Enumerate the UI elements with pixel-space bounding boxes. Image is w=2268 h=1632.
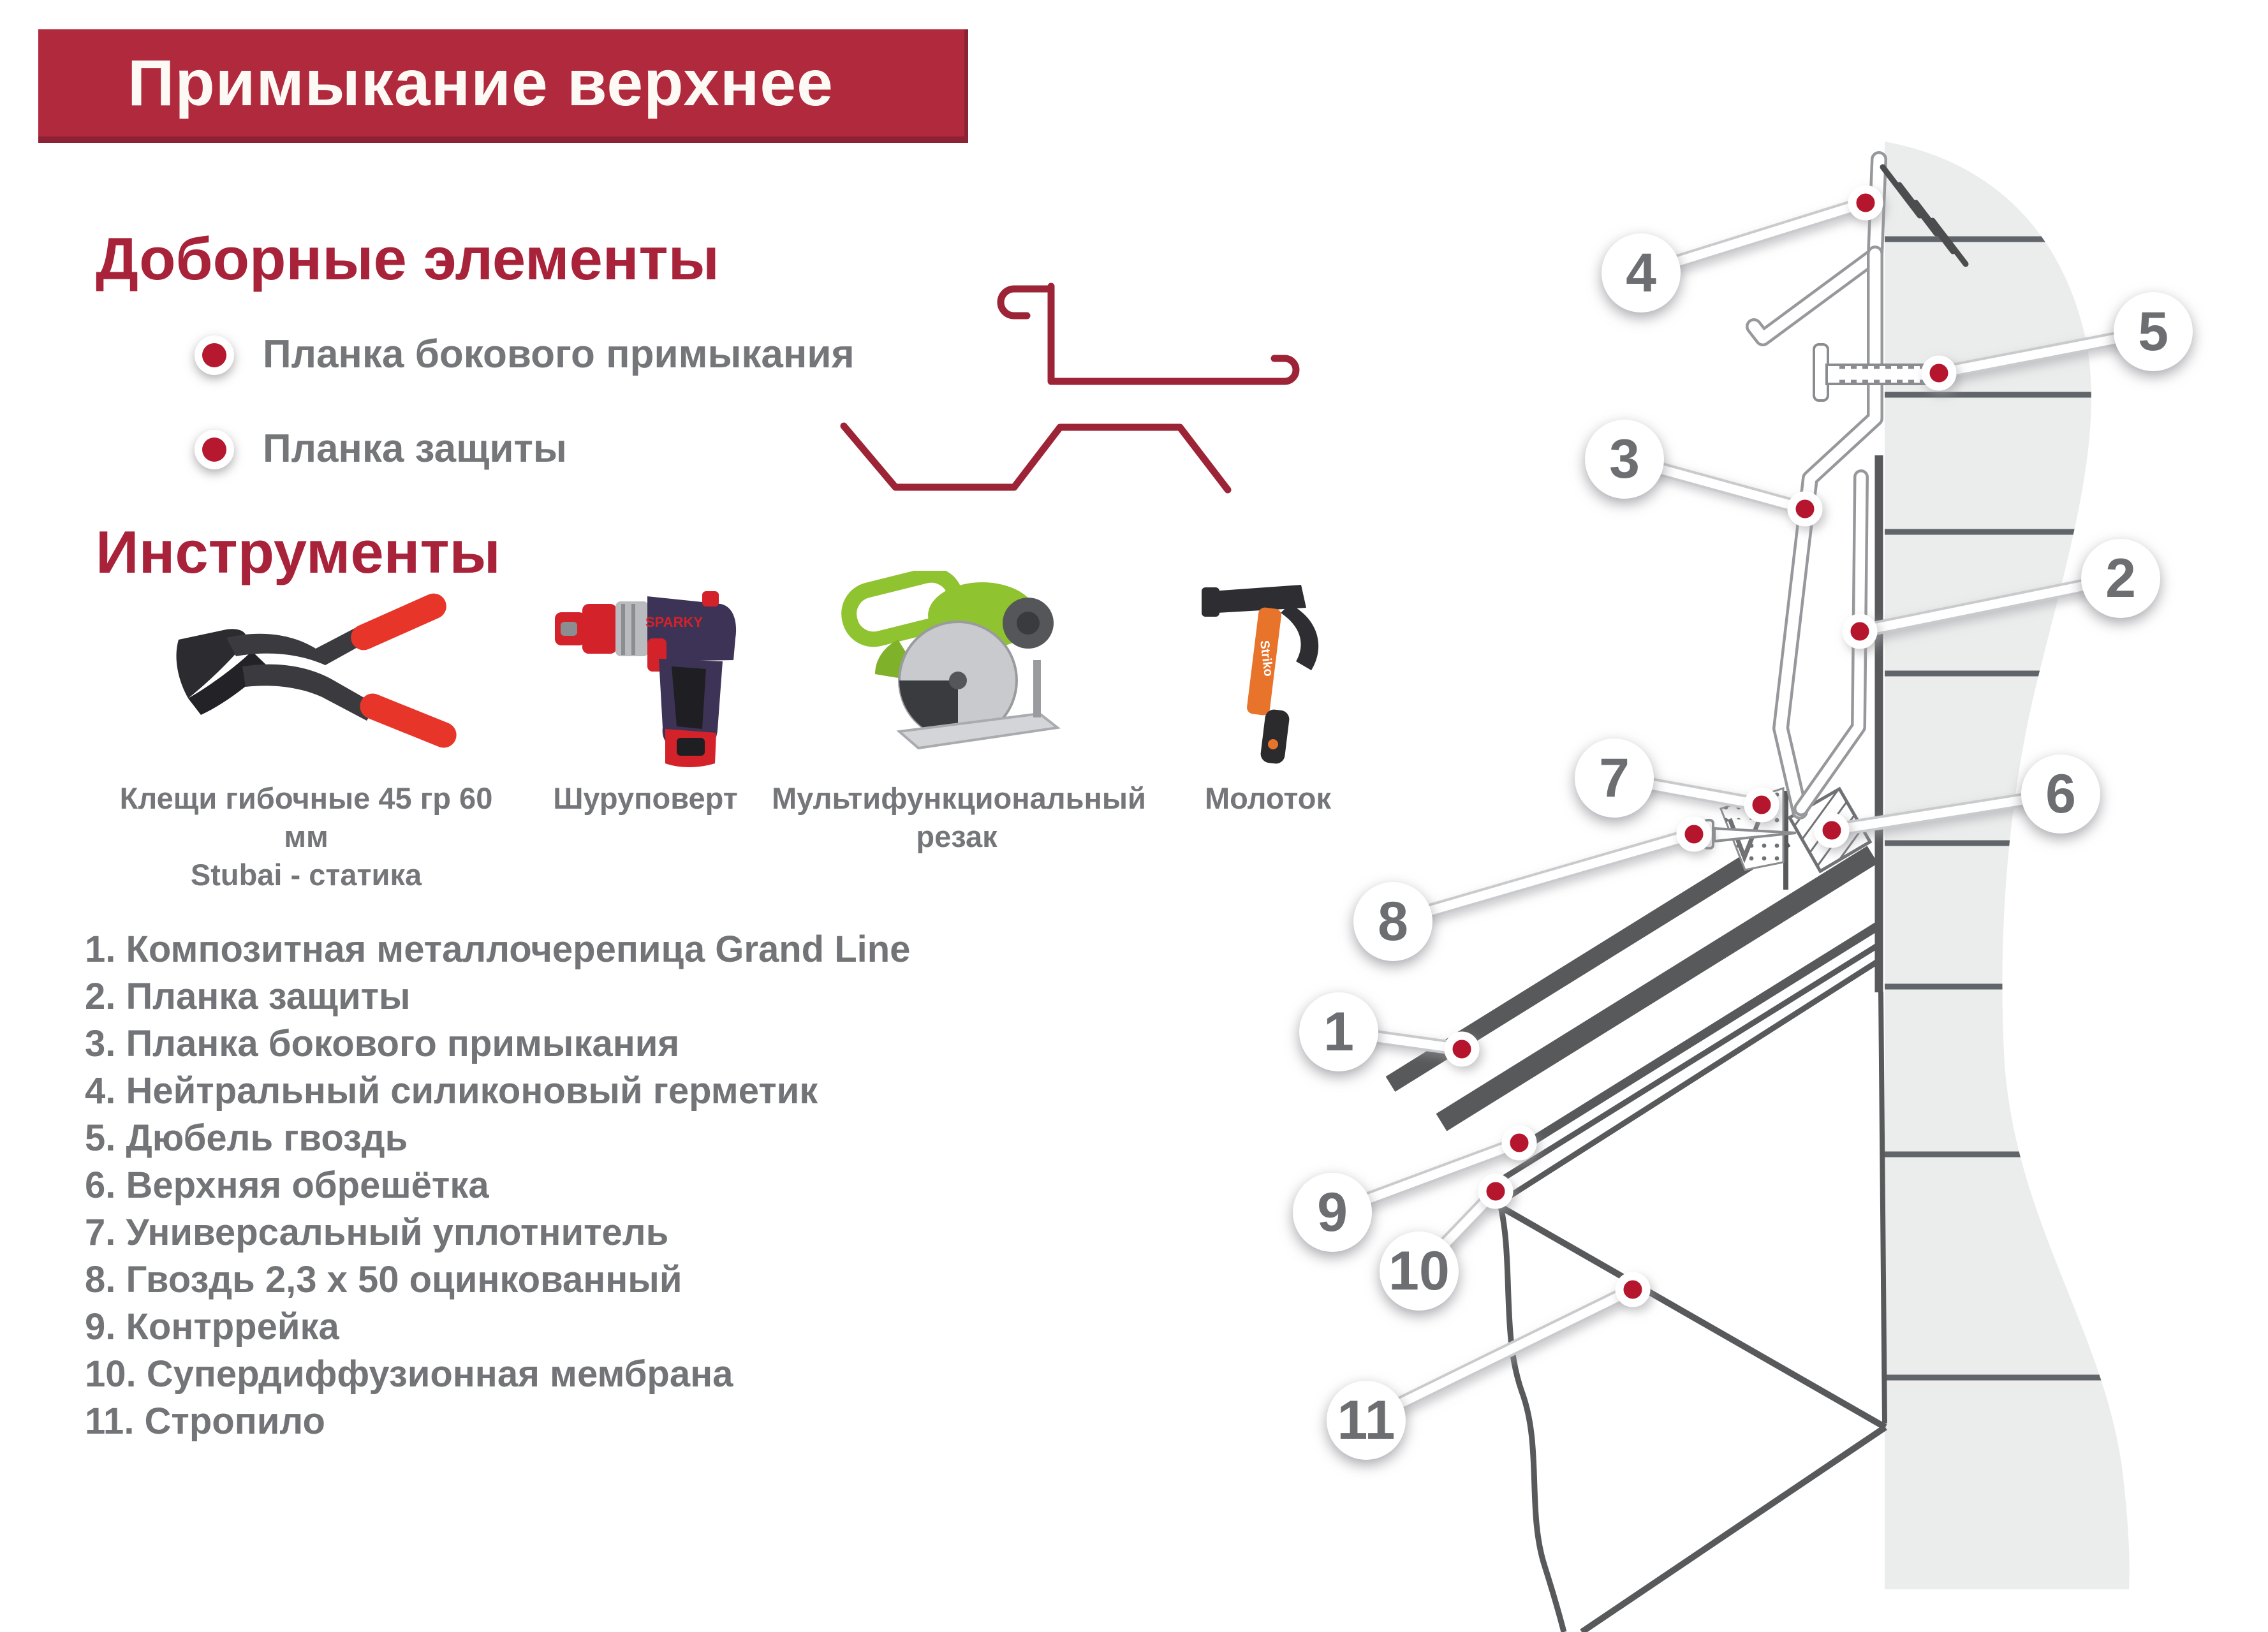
callout-1: 1 — [1299, 992, 1378, 1071]
multifunction-cutter-icon — [823, 571, 1097, 775]
callout-11: 11 — [1327, 1381, 1406, 1460]
marker-dot-10 — [1482, 1178, 1509, 1205]
rafter — [1492, 1202, 1885, 1632]
junction-diagram — [0, 0, 2268, 1632]
protection-flashing-profile — [844, 426, 1228, 490]
cordless-screwdriver-icon: SPARKY — [552, 577, 743, 775]
marker-dot-6 — [1818, 817, 1845, 844]
screwdriver-brand-label: SPARKY — [645, 614, 703, 630]
marker-dot-9 — [1506, 1129, 1533, 1156]
marker-dot-5 — [1926, 360, 1952, 386]
bending-pliers-icon — [166, 590, 459, 775]
membrane-layer-lower — [1505, 960, 1880, 1199]
wall-face-line-lower — [1881, 992, 1885, 1423]
callout-8: 8 — [1353, 882, 1432, 961]
marker-dot-11 — [1619, 1276, 1646, 1303]
callout-6: 6 — [2021, 754, 2100, 834]
callout-5: 5 — [2114, 292, 2193, 371]
hammer-icon: Striko — [1194, 571, 1353, 775]
marker-dot-7 — [1748, 791, 1775, 818]
callout-10: 10 — [1380, 1231, 1459, 1311]
marker-dot-4 — [1852, 189, 1879, 216]
marker-dot-2 — [1846, 618, 1873, 645]
marker-dot-8 — [1681, 821, 1707, 848]
callout-7: 7 — [1575, 739, 1654, 818]
callout-9: 9 — [1293, 1173, 1372, 1252]
marker-dot-1 — [1448, 1036, 1475, 1062]
callout-2: 2 — [2081, 539, 2160, 618]
callout-4: 4 — [1602, 233, 1681, 312]
callout-3: 3 — [1585, 420, 1664, 499]
side-abutment-flashing-profile — [1001, 286, 1296, 381]
marker-dot-3 — [1792, 496, 1818, 522]
infographic-page: Примыкание верхнее Доборные элементы Инс… — [0, 0, 2268, 1632]
